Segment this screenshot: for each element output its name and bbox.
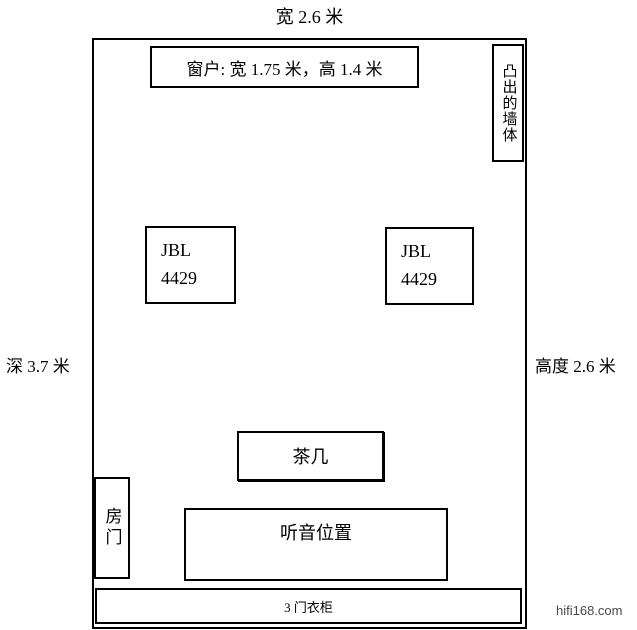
window-box: 窗户: 宽 1.75 米，高 1.4 米 <box>150 46 419 88</box>
depth-dimension-label: 深 3.7 米 <box>6 352 70 377</box>
speaker-left-model: 4429 <box>161 265 234 293</box>
watermark-text: hifi168.com <box>556 603 622 618</box>
speaker-right-box: JBL 4429 <box>385 227 474 305</box>
speaker-left-brand: JBL <box>161 237 234 265</box>
listening-position-box: 听音位置 <box>184 508 448 581</box>
width-dimension-label: 宽 2.6 米 <box>92 3 527 29</box>
speaker-left-box: JBL 4429 <box>145 226 236 304</box>
door-box: 房门 <box>94 477 130 579</box>
wardrobe-box: 3 门衣柜 <box>95 588 522 624</box>
room-layout-diagram: 宽 2.6 米 窗户: 宽 1.75 米，高 1.4 米 凸出的墙体 JBL 4… <box>0 0 637 630</box>
speaker-right-model: 4429 <box>401 266 472 294</box>
protruding-wall-box: 凸出的墙体 <box>492 44 524 162</box>
tea-table-box: 茶几 <box>237 431 384 481</box>
height-dimension-label: 高度 2.6 米 <box>535 352 616 377</box>
speaker-right-brand: JBL <box>401 238 472 266</box>
